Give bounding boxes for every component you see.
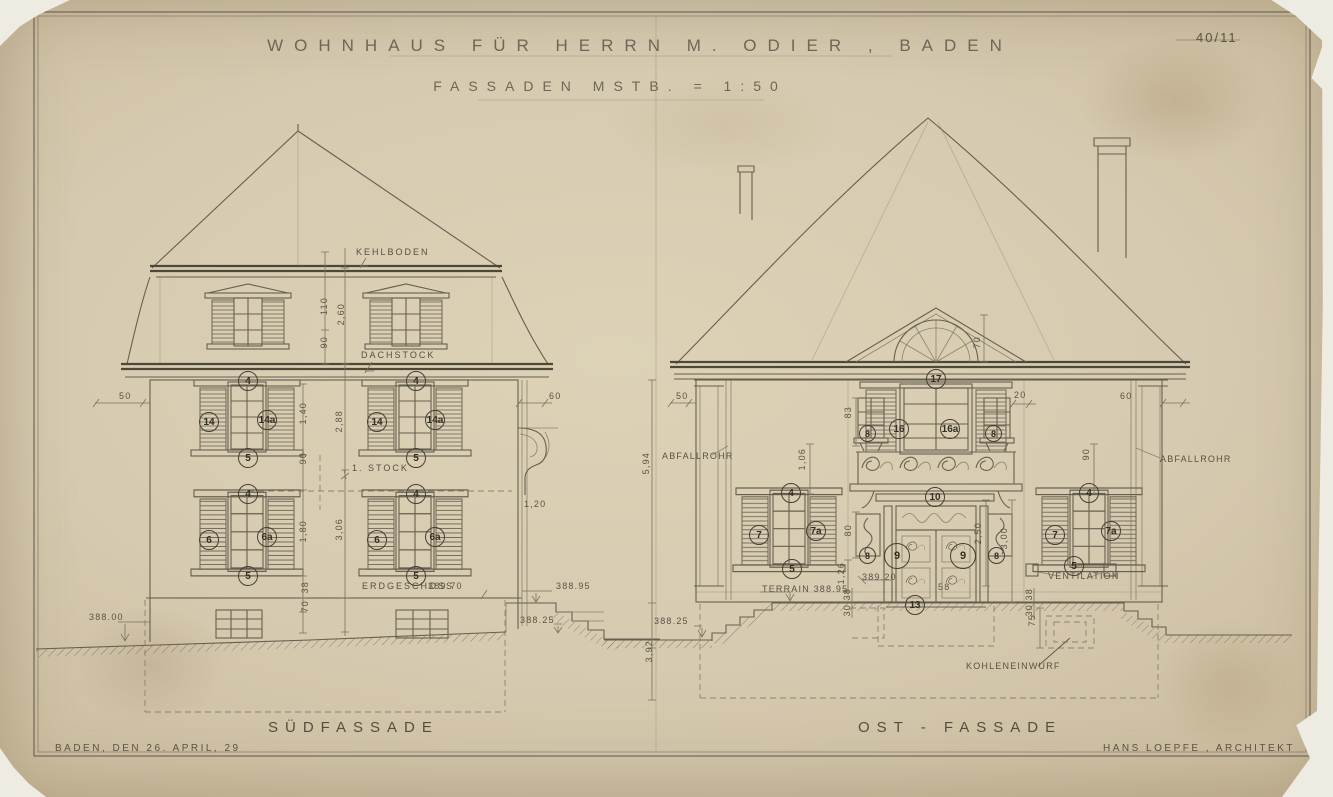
dim-label: 110 [319, 297, 329, 315]
dim-label: 70 [972, 336, 982, 348]
dim-label: 20 [1014, 390, 1026, 400]
window-tag: 9 [950, 543, 976, 569]
window-tag: 4 [238, 371, 258, 391]
east-facade-house [604, 118, 1292, 700]
dim-label: 3,92 [644, 640, 654, 662]
window-tag: 7a [806, 521, 826, 541]
window-tag: 6 [367, 530, 387, 550]
dim-label: 2,88 [334, 410, 344, 432]
window-tag: 8 [985, 425, 1002, 442]
dim-label: 90 [1081, 448, 1091, 460]
window-tag: 8 [859, 425, 876, 442]
erdgeschoss-elevation: 389.70 [428, 581, 463, 591]
dim-label: 38 [842, 588, 852, 600]
south-facade-house [36, 124, 660, 712]
window-tag: 6a [257, 527, 277, 547]
architect-note: HANS LOEPFE , ARCHITEKT [1103, 743, 1295, 754]
dim-label: 70 [300, 600, 310, 612]
dim-label: 90 [319, 336, 329, 348]
dim-label: 1,06 [797, 448, 807, 470]
window-tag: 7 [749, 525, 769, 545]
window-tag: 5 [238, 566, 258, 586]
date-note: BADEN, DEN 26. APRIL, 29 [55, 743, 241, 754]
dim-label: 38 [1024, 588, 1034, 600]
dim-label: 3,00 [999, 527, 1009, 549]
level-label-1stock: 1. STOCK [352, 463, 409, 473]
window-tag: 14a [425, 410, 445, 430]
dim-label: 1,80 [298, 520, 308, 542]
sheet-subtitle: FASSADEN MSTB. = 1:50 [0, 78, 1220, 94]
dim-label: 60 [549, 391, 561, 401]
window-tag: 16a [940, 419, 960, 439]
window-tag: 4 [781, 483, 801, 503]
kohleneinwurf-label: KOHLENEINWURF [966, 661, 1061, 671]
dim-label: 3,06 [334, 518, 344, 540]
dim-label: 60 [1120, 391, 1132, 401]
window-tag: 17 [926, 369, 946, 389]
dim-label: 5,94 [641, 452, 651, 474]
dim-label: 38 [300, 581, 310, 593]
level-label-dachstock: DACHSTOCK [361, 350, 435, 360]
abfallrohr-label: ABFALLROHR [1160, 454, 1232, 464]
dim-label: 1,40 [298, 402, 308, 424]
dim-label: 90 [298, 452, 308, 464]
ventilation-label: VENTILATION [1048, 571, 1120, 581]
east-facade-label: OST - FASSADE [858, 719, 1062, 736]
dim-label: 2,50 [973, 522, 983, 544]
window-tag: 14 [199, 412, 219, 432]
dim-label: 2,60 [336, 303, 346, 325]
window-tag: 5 [1064, 556, 1084, 576]
terrain-label: TERRAIN 388.95 [762, 584, 848, 594]
dim-label: 30 [842, 604, 852, 616]
window-tag: 7 [1045, 525, 1065, 545]
window-tag: 9 [884, 543, 910, 569]
elevation-label: 388.95 [556, 581, 591, 591]
dim-label: 58 [938, 582, 950, 592]
window-tag: 16 [889, 419, 909, 439]
sheet-number: 40/11 [1196, 30, 1238, 45]
drawing-sheet: WOHNHAUS FÜR HERRN M. ODIER , BADEN FASS… [0, 0, 1333, 797]
dim-label: 83 [843, 406, 853, 418]
elevation-label: 389.20 [862, 572, 897, 582]
window-tag: 4 [406, 371, 426, 391]
elevation-label: 388.25 [654, 616, 689, 626]
window-tag: 5 [406, 448, 426, 468]
window-tag: 8 [988, 547, 1005, 564]
level-label-kehlboden: KEHLBODEN [356, 247, 430, 257]
dim-label: 50 [676, 391, 688, 401]
window-tag: 4 [406, 484, 426, 504]
south-facade-label: SÜDFASSADE [268, 719, 439, 736]
window-tag: 5 [406, 566, 426, 586]
sheet-title: WOHNHAUS FÜR HERRN M. ODIER , BADEN [0, 36, 1280, 56]
window-tag: 5 [782, 559, 802, 579]
dim-label: 50 [119, 391, 131, 401]
window-tag: 6a [425, 527, 445, 547]
elevation-label: 388.25 [520, 615, 555, 625]
window-tag: 8 [859, 547, 876, 564]
dim-label: 80 [843, 524, 853, 536]
dim-label: 1,26 [836, 562, 846, 584]
abfallrohr-label: ABFALLROHR [662, 451, 734, 461]
dim-label: 1,20 [524, 499, 546, 509]
window-tag: 10 [925, 487, 945, 507]
window-tag: 5 [238, 448, 258, 468]
window-tag: 13 [905, 595, 925, 615]
window-tag: 4 [238, 484, 258, 504]
window-tag: 14 [367, 412, 387, 432]
window-tag: 6 [199, 530, 219, 550]
dim-label: 30 [1024, 604, 1034, 616]
window-tag: 7a [1101, 521, 1121, 541]
drawing-linework [0, 0, 1333, 797]
window-tag: 14a [257, 410, 277, 430]
window-tag: 4 [1079, 483, 1099, 503]
elevation-label: 388.00 [89, 612, 124, 622]
